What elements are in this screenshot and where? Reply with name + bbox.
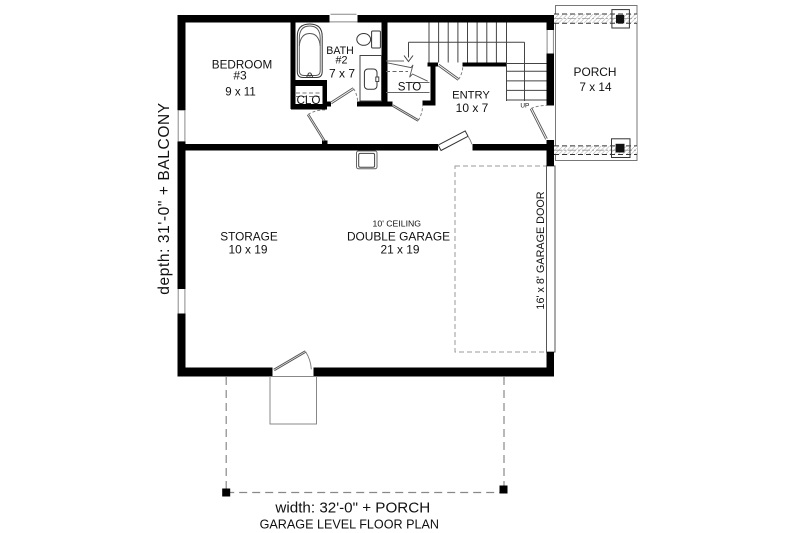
svg-text:9 x 11: 9 x 11: [225, 86, 255, 98]
svg-text:STORAGE: STORAGE: [220, 229, 278, 243]
svg-text:CLO: CLO: [296, 94, 320, 107]
svg-text:#3: #3: [233, 69, 247, 83]
svg-text:DOUBLE GARAGE: DOUBLE GARAGE: [347, 229, 450, 243]
svg-text:10' CEILING: 10' CEILING: [373, 219, 422, 229]
svg-text:GARAGE LEVEL FLOOR PLAN: GARAGE LEVEL FLOOR PLAN: [260, 518, 439, 532]
svg-text:10 x 7: 10 x 7: [456, 101, 489, 115]
svg-text:ENTRY: ENTRY: [452, 89, 490, 101]
svg-text:7 x 7: 7 x 7: [329, 66, 355, 80]
svg-text:width: 32'-0" + PORCH: width: 32'-0" + PORCH: [274, 500, 430, 517]
svg-text:UP: UP: [520, 102, 529, 109]
svg-text:10 x 19: 10 x 19: [228, 243, 267, 257]
svg-text:STO: STO: [398, 81, 422, 94]
svg-text:PORCH: PORCH: [574, 65, 617, 79]
svg-text:16' x 8' GARAGE DOOR: 16' x 8' GARAGE DOOR: [535, 191, 547, 309]
svg-text:depth: 31'-0" + BALCONY: depth: 31'-0" + BALCONY: [156, 102, 173, 294]
svg-text:#2: #2: [335, 55, 347, 67]
svg-text:21 x 19: 21 x 19: [380, 243, 419, 257]
svg-text:7 x 14: 7 x 14: [579, 80, 612, 94]
